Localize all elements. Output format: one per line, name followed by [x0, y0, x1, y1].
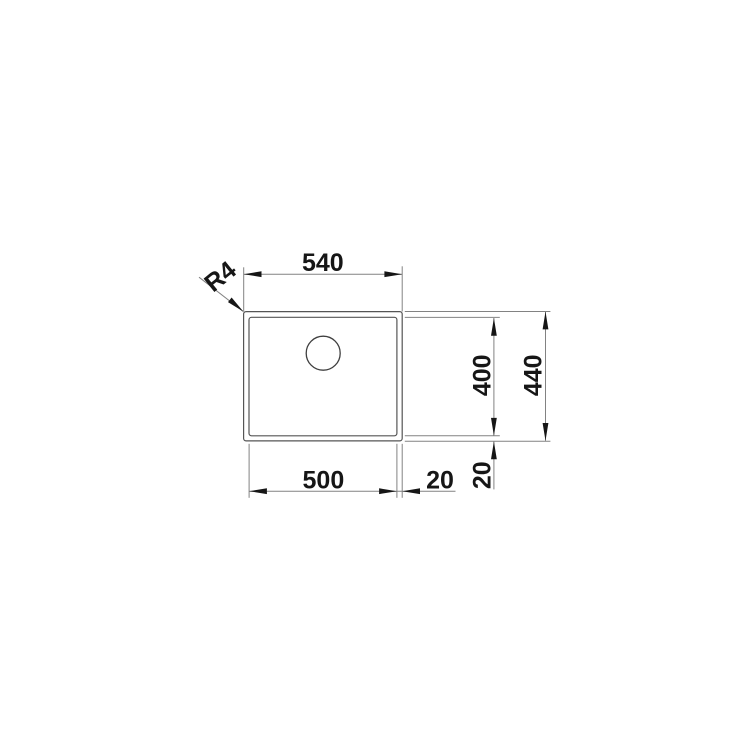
- svg-text:400: 400: [468, 354, 496, 396]
- svg-text:540: 540: [302, 249, 344, 277]
- svg-text:500: 500: [303, 466, 345, 494]
- svg-text:20: 20: [468, 461, 496, 489]
- svg-text:20: 20: [426, 466, 454, 494]
- svg-text:440: 440: [519, 354, 547, 396]
